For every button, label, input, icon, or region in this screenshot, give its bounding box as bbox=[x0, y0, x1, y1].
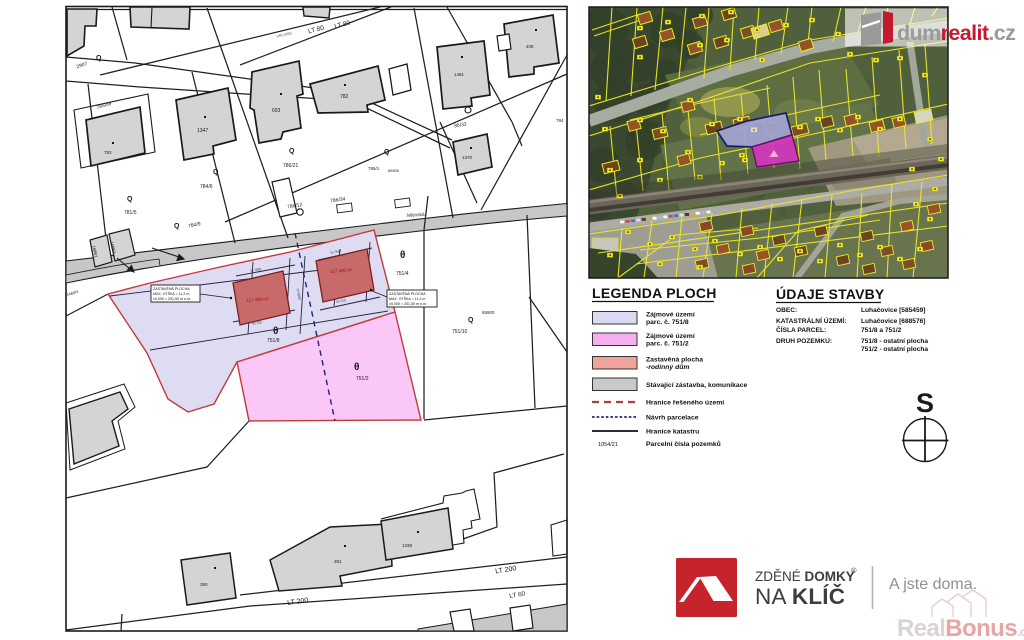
svg-text:751/8 - ostatní plocha: 751/8 - ostatní plocha bbox=[861, 338, 928, 345]
svg-text:RealBonus.cz: RealBonus.cz bbox=[897, 615, 1024, 640]
svg-text:ZASTAVĚNÁ PLOCHA: ZASTAVĚNÁ PLOCHA bbox=[389, 291, 426, 296]
svg-text:MAX. VÝŠKA = 11,2 m: MAX. VÝŠKA = 11,2 m bbox=[153, 291, 189, 296]
svg-text:65900: 65900 bbox=[388, 168, 400, 173]
svg-text:Q: Q bbox=[289, 148, 295, 155]
svg-text:391: 391 bbox=[334, 559, 342, 564]
svg-text:Zastavěná plocha: Zastavěná plocha bbox=[646, 357, 703, 364]
svg-text:LEGENDA PLOCH: LEGENDA PLOCH bbox=[592, 285, 717, 301]
svg-text:1338: 1338 bbox=[402, 543, 413, 548]
svg-text:693: 693 bbox=[272, 108, 281, 114]
svg-text:784: 784 bbox=[556, 118, 564, 123]
svg-text:ÚDAJE STAVBY: ÚDAJE STAVBY bbox=[776, 285, 885, 302]
svg-text:-rodinný dům: -rodinný dům bbox=[646, 363, 689, 371]
svg-text:781/5: 781/5 bbox=[124, 210, 137, 216]
svg-text:Q: Q bbox=[213, 169, 219, 176]
svg-text:Hranice katastru: Hranice katastru bbox=[646, 429, 699, 436]
svg-text:784/6: 784/6 bbox=[200, 184, 213, 190]
svg-text:Parcelní čísla pozemků: Parcelní čísla pozemků bbox=[646, 440, 721, 448]
svg-text:Q: Q bbox=[96, 55, 102, 62]
svg-text:783: 783 bbox=[104, 150, 112, 155]
svg-text:786/21: 786/21 bbox=[283, 163, 299, 169]
svg-text:±0,000 = 251,50 m n.m.: ±0,000 = 251,50 m n.m. bbox=[153, 297, 191, 301]
svg-text:Luhačovice [585459]: Luhačovice [585459] bbox=[861, 307, 926, 314]
svg-text:Q: Q bbox=[127, 196, 133, 203]
svg-text:Q: Q bbox=[468, 317, 474, 324]
svg-text:dumrealit.cz: dumrealit.cz bbox=[897, 21, 1015, 45]
svg-text:®: ® bbox=[851, 566, 857, 575]
svg-text:751/8 a 751/2: 751/8 a 751/2 bbox=[861, 327, 902, 334]
svg-text:ZDĚNÉ DOMKY: ZDĚNÉ DOMKY bbox=[755, 569, 855, 584]
svg-text:θ: θ bbox=[400, 250, 405, 261]
svg-text:θ: θ bbox=[354, 362, 359, 373]
svg-text:Zájmové území: Zájmové území bbox=[646, 312, 696, 319]
svg-text:DRUH POZEMKU:: DRUH POZEMKU: bbox=[776, 338, 832, 345]
svg-text:390: 390 bbox=[200, 582, 208, 587]
svg-text:±0,000 = 251,50 m n.m.: ±0,000 = 251,50 m n.m. bbox=[389, 302, 427, 306]
svg-text:OBEC:: OBEC: bbox=[776, 307, 797, 314]
svg-text:Q: Q bbox=[174, 223, 180, 230]
svg-text:KATASTRÁLNÍ ÚZEMÍ:: KATASTRÁLNÍ ÚZEMÍ: bbox=[776, 316, 846, 325]
svg-text:1054/21: 1054/21 bbox=[598, 442, 618, 448]
svg-text:MAX. VÝŠKA = 11,2 m: MAX. VÝŠKA = 11,2 m bbox=[389, 296, 425, 301]
svg-text:1481: 1481 bbox=[454, 72, 465, 77]
svg-text:751/4: 751/4 bbox=[396, 271, 409, 277]
svg-text:786/1: 786/1 bbox=[368, 166, 380, 171]
svg-text:782: 782 bbox=[340, 94, 349, 100]
svg-text:751/8: 751/8 bbox=[267, 338, 280, 344]
svg-text:S: S bbox=[916, 388, 934, 418]
svg-text:751/2 - ostatní plocha: 751/2 - ostatní plocha bbox=[861, 346, 928, 353]
svg-text:ZASTAVĚNÁ PLOCHA: ZASTAVĚNÁ PLOCHA bbox=[153, 286, 190, 291]
svg-text:parc. č. 751/8: parc. č. 751/8 bbox=[646, 319, 689, 326]
svg-text:Stávající zástavba, komunikace: Stávající zástavba, komunikace bbox=[646, 382, 747, 389]
svg-text:A jste doma.: A jste doma. bbox=[889, 576, 977, 593]
svg-text:Mlýnská: Mlýnská bbox=[407, 212, 425, 219]
svg-text:ČÍSLA PARCEL:: ČÍSLA PARCEL: bbox=[776, 325, 826, 334]
svg-text:Luhačovice [688576]: Luhačovice [688576] bbox=[861, 318, 926, 325]
svg-text:Hranice řešeného území: Hranice řešeného území bbox=[646, 400, 725, 407]
svg-text:751/10: 751/10 bbox=[452, 329, 468, 335]
svg-text:parc. č. 751/2: parc. č. 751/2 bbox=[646, 341, 689, 348]
svg-text:Návrh parcelace: Návrh parcelace bbox=[646, 415, 699, 422]
svg-text:65900: 65900 bbox=[482, 310, 495, 315]
svg-text:Q: Q bbox=[384, 149, 390, 156]
svg-text:NA KLÍČ: NA KLÍČ bbox=[755, 584, 845, 609]
svg-text:θ: θ bbox=[273, 326, 278, 337]
svg-text:1347: 1347 bbox=[197, 128, 208, 134]
svg-text:Zájmové území: Zájmové území bbox=[646, 333, 696, 340]
svg-text:1370: 1370 bbox=[462, 155, 473, 160]
svg-text:408: 408 bbox=[526, 44, 534, 49]
svg-text:751/2: 751/2 bbox=[356, 376, 369, 382]
